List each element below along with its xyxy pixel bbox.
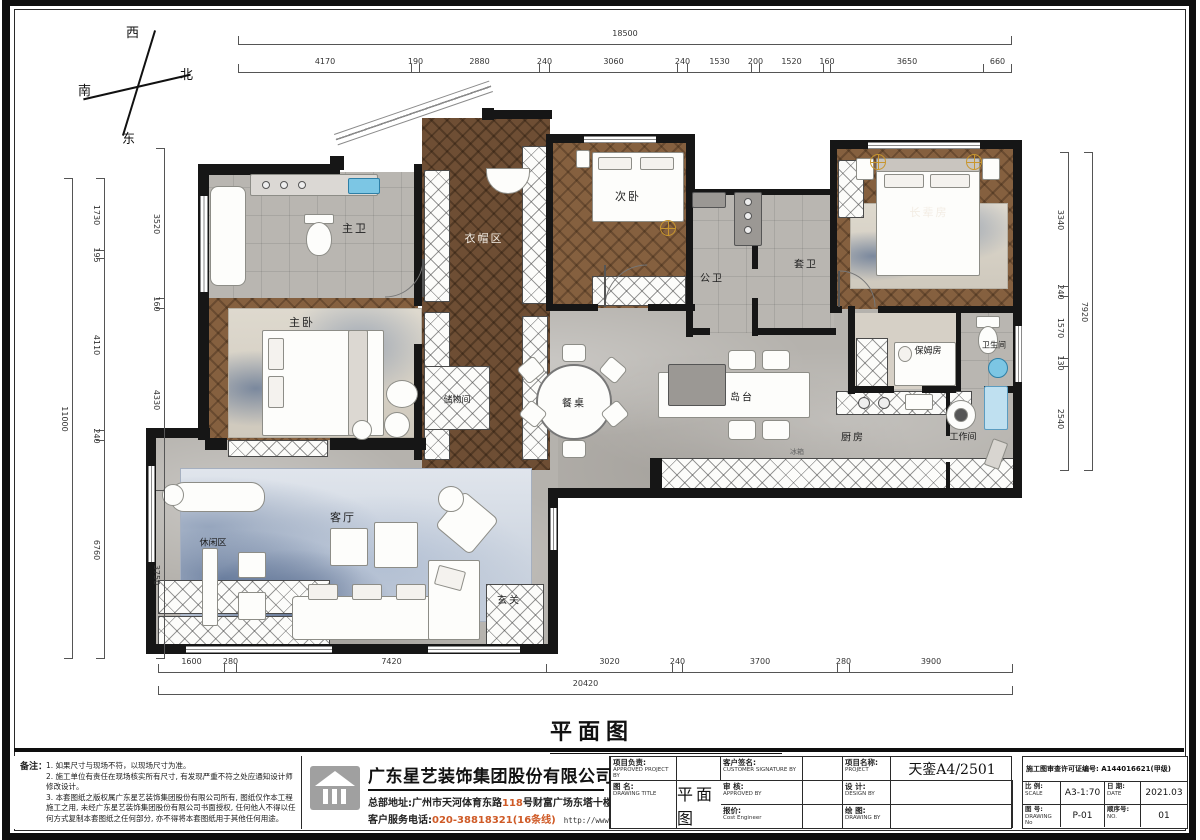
pillow — [598, 157, 632, 170]
company-address-prefix: 总部地址:广州市天河体育东路 — [368, 798, 502, 809]
compass-north-label: 北 — [180, 64, 193, 83]
pillow — [898, 346, 912, 362]
company-address-suffix: 号财富广场东塔十楼 — [523, 798, 613, 809]
permit-panel: 施工图审查许可证编号: A144016621(甲级) 比 例: SCALE A3… — [1022, 756, 1188, 829]
sofa-cushion — [396, 584, 426, 600]
label-date-en: DATE — [1107, 791, 1138, 797]
dim-left-outer: 1730 195 4110 240 6760 — [96, 178, 105, 659]
kitchen-counter-bottom — [660, 458, 1014, 492]
dim-top-total: 18500 — [238, 36, 1012, 45]
pillow — [640, 157, 674, 170]
label-scale-en: SCALE — [1025, 791, 1058, 797]
armchair — [386, 380, 418, 408]
cell-date-label: 日 期: DATE — [1105, 782, 1141, 805]
company-address: 总部地址:广州市天河体育东路118号财富广场东塔十楼 — [368, 794, 604, 809]
dim-value: 3900 — [921, 658, 941, 666]
door-arc — [384, 258, 424, 298]
compass-rose: 西 北 南 东 — [82, 26, 194, 144]
pillow — [884, 174, 924, 188]
label-project-en: PROJECT — [845, 767, 888, 773]
wardrobe-nanny — [856, 338, 888, 388]
label-drawing-title-en: DRAWING TITLE — [613, 791, 674, 797]
cell-review-value — [803, 781, 843, 805]
dim-value: 3700 — [750, 658, 770, 666]
dim-value: 6760 — [92, 539, 100, 559]
cell-design-value — [891, 781, 1013, 805]
dim-value: 280 — [836, 658, 851, 666]
wall — [546, 134, 553, 310]
dim-value: 7420 — [381, 658, 401, 666]
window — [148, 466, 155, 562]
stove-burner — [878, 397, 890, 409]
cell-drawing-by-value — [891, 805, 1013, 828]
room-label-leisure: 休闲区 — [199, 536, 226, 549]
dim-left-inner: 3520 160 4330 3750 — [156, 148, 165, 659]
cell-approved-project-value — [677, 757, 721, 781]
dim-right-segments: 3340 240 1570 130 2540 — [1060, 152, 1069, 471]
cell-drawing-title-label: 图 名: DRAWING TITLE — [611, 781, 677, 828]
notes-body: 1. 如果尺寸与现场不符，以现场尺寸为准。 2. 施工单位有责任在现场核实所有尺… — [46, 761, 296, 824]
label-approved-project-en: APPROVED PROJECT BY — [613, 767, 674, 780]
room-label-kitchen: 厨房 — [841, 429, 865, 444]
wall — [956, 311, 961, 391]
room-label-bathroom: 卫生间 — [982, 340, 1006, 351]
label-approved-project-cn: 项目负责: — [613, 758, 674, 767]
label-review-cn: 审 核: — [723, 782, 800, 791]
wall — [946, 462, 950, 492]
dim-left-total: 11000 — [64, 178, 73, 659]
label-customer-cn: 客户签名: — [723, 758, 800, 767]
label-drawing-no-cn: 图 号: — [1025, 806, 1058, 814]
wall — [546, 304, 598, 311]
dim-value: 20420 — [573, 680, 598, 688]
sink-basin — [348, 178, 380, 194]
window — [550, 508, 557, 550]
door-arc — [838, 270, 876, 308]
label-drawing-title-cn: 图 名: — [613, 782, 674, 791]
wall — [752, 328, 836, 335]
dining-chair — [562, 344, 586, 362]
label-customer-en: CUSTOMER SIGNATURE BY — [723, 767, 800, 773]
knob — [298, 181, 306, 189]
dim-bottom-total: 20420 — [158, 686, 1013, 695]
room-label-elder-room: 长辈房 — [910, 204, 949, 220]
compass-east-label: 东 — [122, 128, 135, 147]
island-chair — [728, 420, 756, 440]
window — [584, 136, 656, 143]
ironing-board — [984, 386, 1008, 430]
bathtub — [210, 186, 246, 286]
dim-value: 18500 — [612, 30, 637, 38]
room-label-storage: 储物间 — [443, 393, 470, 406]
room-label-second-bed: 次卧 — [615, 188, 641, 204]
drawing-title-value: 平面图 — [677, 781, 721, 828]
compass-south-label: 南 — [78, 80, 91, 99]
cell-drawing-no-label: 图 号: DRAWING No — [1023, 805, 1061, 827]
dim-value: 1520 — [781, 58, 801, 66]
knob — [744, 226, 752, 234]
door-arc — [604, 264, 648, 308]
project-value: 天銮A4/2501 — [891, 757, 1013, 781]
wall — [688, 328, 710, 335]
label-design-en: DESIGN BY — [845, 791, 888, 797]
wall — [878, 306, 1022, 313]
window — [200, 196, 208, 292]
dim-value: 3340 — [1056, 209, 1064, 229]
dim-value: 2540 — [1056, 408, 1064, 428]
frame-bottom — [2, 833, 1194, 840]
island-chair — [762, 420, 790, 440]
sofa-cushion — [308, 584, 338, 600]
dim-value: 1570 — [1056, 317, 1064, 337]
label-seq-en: NO. — [1107, 814, 1138, 820]
label-project-cn: 项目名称: — [845, 758, 888, 767]
stove-burner — [858, 397, 870, 409]
dim-value: 1600 — [181, 658, 201, 666]
wall — [686, 134, 695, 196]
frame-right — [1189, 0, 1196, 840]
wall-pier — [650, 458, 662, 492]
house-logo-icon — [310, 766, 360, 810]
island-chair — [762, 350, 790, 370]
wall — [1013, 140, 1022, 498]
dim-value: 2880 — [469, 58, 489, 66]
room-label-master-bed: 主卧 — [289, 314, 315, 330]
side-table — [238, 592, 266, 620]
notes-panel: 备注： 1. 如果尺寸与现场不符，以现场尺寸为准。 2. 施工单位有责任在现场核… — [14, 756, 302, 829]
cell-review: 审 核: APPROVED BY — [721, 781, 803, 805]
notes-line-1: 1. 如果尺寸与现场不符，以现场尺寸为准。 — [46, 761, 296, 772]
wall-pier — [330, 156, 344, 170]
drawing-title: 平面图 — [550, 714, 790, 746]
company-name: 广东星艺装饰集团股份有限公司 — [368, 762, 604, 791]
room-label-living: 客厅 — [330, 509, 356, 525]
coffee-table — [374, 522, 418, 568]
toilet — [306, 222, 332, 256]
room-label-cloak: 衣帽区 — [465, 230, 504, 246]
window — [1015, 326, 1022, 382]
headboard — [876, 158, 980, 172]
dim-value: 3020 — [599, 658, 619, 666]
dim-right-total: 7920 — [1084, 152, 1093, 471]
dim-top-segments: 4170 190 2880 240 3060 240 1530 200 1520… — [238, 64, 1012, 73]
dim-value: 4170 — [315, 58, 335, 66]
notes-line-2: 2. 施工单位有责任在现场核实所有尺寸, 有发现严重不符之处应通知设计师修改设计… — [46, 772, 296, 793]
island-appliance — [668, 364, 726, 406]
dim-value: 280 — [223, 658, 238, 666]
room-label-master-bath: 主卫 — [342, 220, 368, 236]
window — [868, 142, 980, 149]
dim-value: 4330 — [152, 389, 160, 409]
nightstand — [982, 158, 1000, 180]
permit-number: 施工图审查许可证编号: A144016621(甲级) — [1023, 757, 1187, 782]
seq-value: 01 — [1141, 805, 1187, 827]
room-label-entry: 玄关 — [497, 592, 521, 607]
dim-bottom-segments: 1600 280 7420 3020 240 3700 280 3900 — [158, 664, 1013, 673]
label-seq-cn: 顺序号: — [1107, 806, 1138, 814]
label-cost-en: Cost Engineer — [723, 815, 800, 821]
cell-project-label: 项目名称: PROJECT — [843, 757, 891, 781]
dim-value: 11000 — [60, 406, 68, 431]
cell-customer-value — [803, 757, 843, 781]
cell-seq-label: 顺序号: NO. — [1105, 805, 1141, 827]
label-scale-cn: 比 例: — [1025, 783, 1058, 791]
sofa-cushion — [352, 584, 382, 600]
wall — [686, 189, 693, 337]
window — [428, 646, 520, 653]
company-phone-number: 020-38818321(16条线) — [432, 815, 556, 826]
dim-value: 1730 — [92, 204, 100, 224]
company-phone-label: 客户服务电话: — [368, 815, 432, 826]
tv-console — [202, 548, 218, 626]
wall — [556, 488, 1022, 498]
wall — [486, 110, 552, 119]
notes-heading: 备注： — [20, 762, 47, 773]
knob — [280, 181, 288, 189]
recliner-footrest — [162, 484, 184, 506]
side-table — [384, 412, 410, 438]
ceiling-fixture-icon — [870, 154, 886, 170]
wall — [205, 438, 227, 450]
label-cost-cn: 报价: — [723, 806, 800, 815]
dim-value: 3750 — [152, 564, 160, 584]
company-address-number: 118 — [502, 798, 523, 809]
scale-date-grid: 比 例: SCALE A3-1:70 日 期: DATE 2021.03 图 号… — [1023, 782, 1187, 827]
room-label-workroom: 工作间 — [949, 430, 976, 443]
dim-value: 3520 — [152, 213, 160, 233]
room-label-nanny: 保姆房 — [914, 344, 941, 357]
island-chair — [728, 350, 756, 370]
dim-value: 3650 — [897, 58, 917, 66]
label-review-en: APPROVED BY — [723, 791, 800, 797]
dim-value: 7920 — [1080, 301, 1088, 321]
drawing-no-value: P-01 — [1061, 805, 1105, 827]
compass-west-label: 西 — [126, 22, 139, 41]
room-label-island: 岛台 — [730, 389, 754, 404]
company-logo — [310, 766, 360, 810]
title-underline-thin — [550, 753, 782, 754]
notes-line-3: 3. 本套图纸之版权属广东星艺装饰集团股份有限公司所有, 图纸仅作本工程施工之用… — [46, 793, 296, 825]
frame-left — [2, 0, 10, 840]
dining-chair — [562, 440, 586, 458]
tv-wall-cabinet — [228, 440, 328, 457]
cell-customer: 客户签名: CUSTOMER SIGNATURE BY — [721, 757, 803, 781]
side-table — [352, 420, 372, 440]
wall-pier — [482, 108, 494, 120]
washing-machine-drum — [954, 408, 968, 422]
cell-cost: 报价: Cost Engineer — [721, 805, 803, 828]
pillow — [268, 376, 284, 408]
cell-approved-project: 项目负责: APPROVED PROJECT BY — [611, 757, 677, 781]
titleblock-separator — [14, 748, 1184, 752]
pillow — [268, 338, 284, 370]
label-design-cn: 设 计: — [845, 782, 888, 791]
wardrobe-cloak-left-upper — [424, 170, 450, 302]
pillow — [930, 174, 970, 188]
room-label-public-bath: 公卫 — [700, 270, 724, 285]
wall — [330, 438, 426, 450]
cell-design: 设 计: DESIGN BY — [843, 781, 891, 805]
wall — [848, 306, 855, 394]
wall — [848, 386, 894, 393]
cell-cost-value — [803, 805, 843, 828]
knob — [262, 181, 270, 189]
nightstand — [576, 150, 590, 168]
window — [186, 646, 332, 653]
cell-scale-label: 比 例: SCALE — [1023, 782, 1061, 805]
room-label-fridge: 冰箱 — [790, 447, 804, 457]
room-label-dining-table: 餐桌 — [562, 395, 586, 410]
date-value: 2021.03 — [1141, 782, 1187, 805]
cell-drawing-by: 绘 图: DRAWING BY — [843, 805, 891, 828]
frame-top — [2, 0, 1194, 6]
side-table — [438, 486, 464, 512]
wall — [922, 386, 956, 393]
label-drawing-by-en: DRAWING BY — [845, 815, 888, 821]
label-drawing-no-en: DRAWING No — [1025, 814, 1058, 827]
room-label-suite-bath: 套卫 — [794, 256, 818, 271]
knob — [744, 198, 752, 206]
dim-value: 660 — [990, 58, 1005, 66]
dim-value: 1530 — [709, 58, 729, 66]
company-panel: 广东星艺装饰集团股份有限公司 总部地址:广州市天河体育东路118号财富广场东塔十… — [302, 756, 610, 829]
kitchen-sink — [905, 394, 933, 410]
scale-value: A3-1:70 — [1061, 782, 1105, 805]
dim-value: 3060 — [603, 58, 623, 66]
knob — [744, 212, 752, 220]
coffee-table — [330, 528, 368, 566]
shaft — [692, 192, 726, 208]
wall — [830, 140, 837, 310]
sink-basin — [988, 358, 1008, 378]
ceiling-fixture-icon — [966, 154, 982, 170]
company-phone-row: 客户服务电话:020-38818321(16条线)http://www.xing… — [368, 811, 604, 826]
dim-value: 4110 — [92, 334, 100, 354]
compass-axis-sn — [83, 74, 191, 101]
signature-table: 项目负责: APPROVED PROJECT BY 客户签名: CUSTOMER… — [610, 756, 1012, 829]
label-drawing-by-cn: 绘 图: — [845, 806, 888, 815]
recliner — [170, 482, 265, 512]
ceiling-fixture-icon — [660, 220, 676, 236]
drawing-sheet: 西 北 南 东 — [0, 0, 1200, 840]
label-date-cn: 日 期: — [1107, 783, 1138, 791]
side-table — [238, 552, 266, 578]
